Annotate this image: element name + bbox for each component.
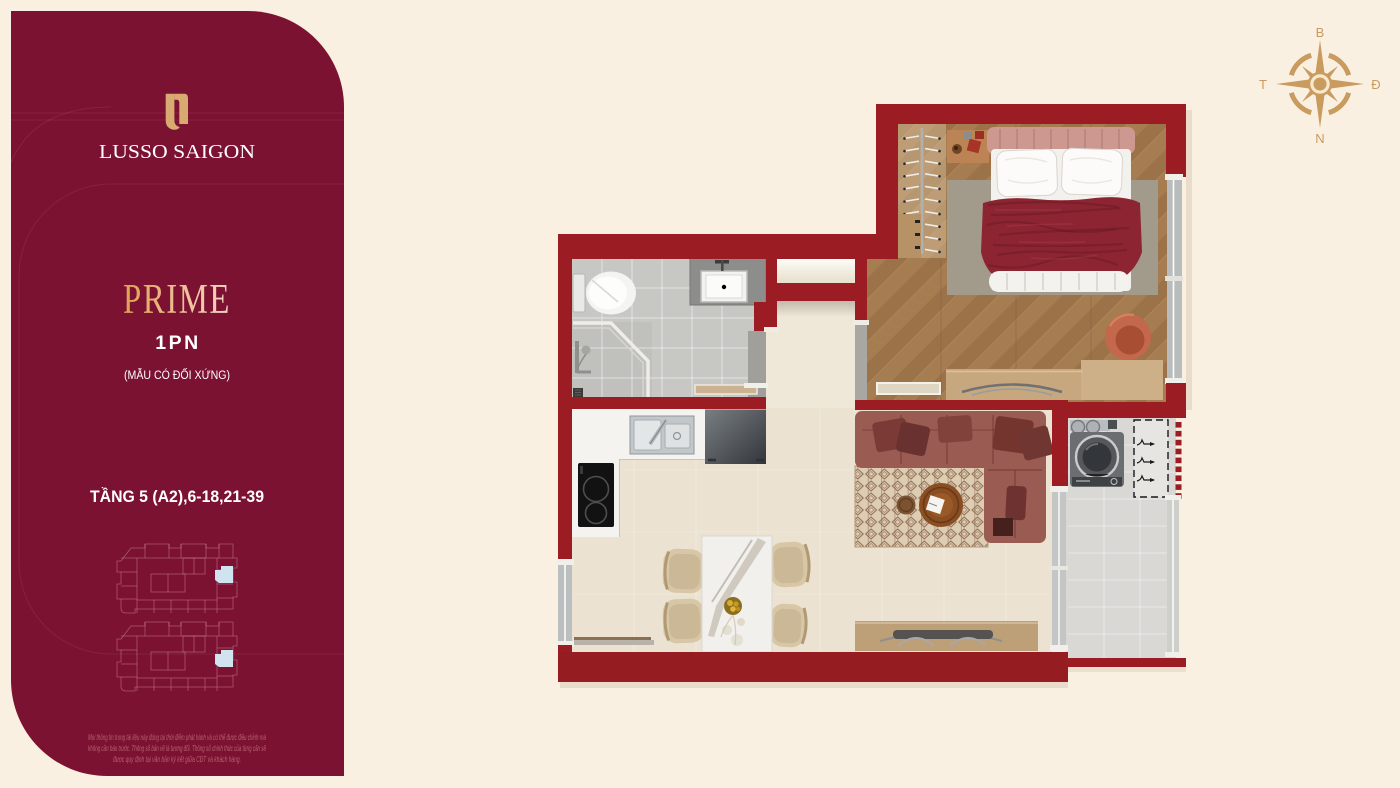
svg-text:Đ: Đ <box>1371 77 1380 92</box>
svg-text:T: T <box>1259 77 1267 92</box>
svg-text:B: B <box>1316 25 1325 40</box>
svg-text:N: N <box>1315 131 1324 146</box>
